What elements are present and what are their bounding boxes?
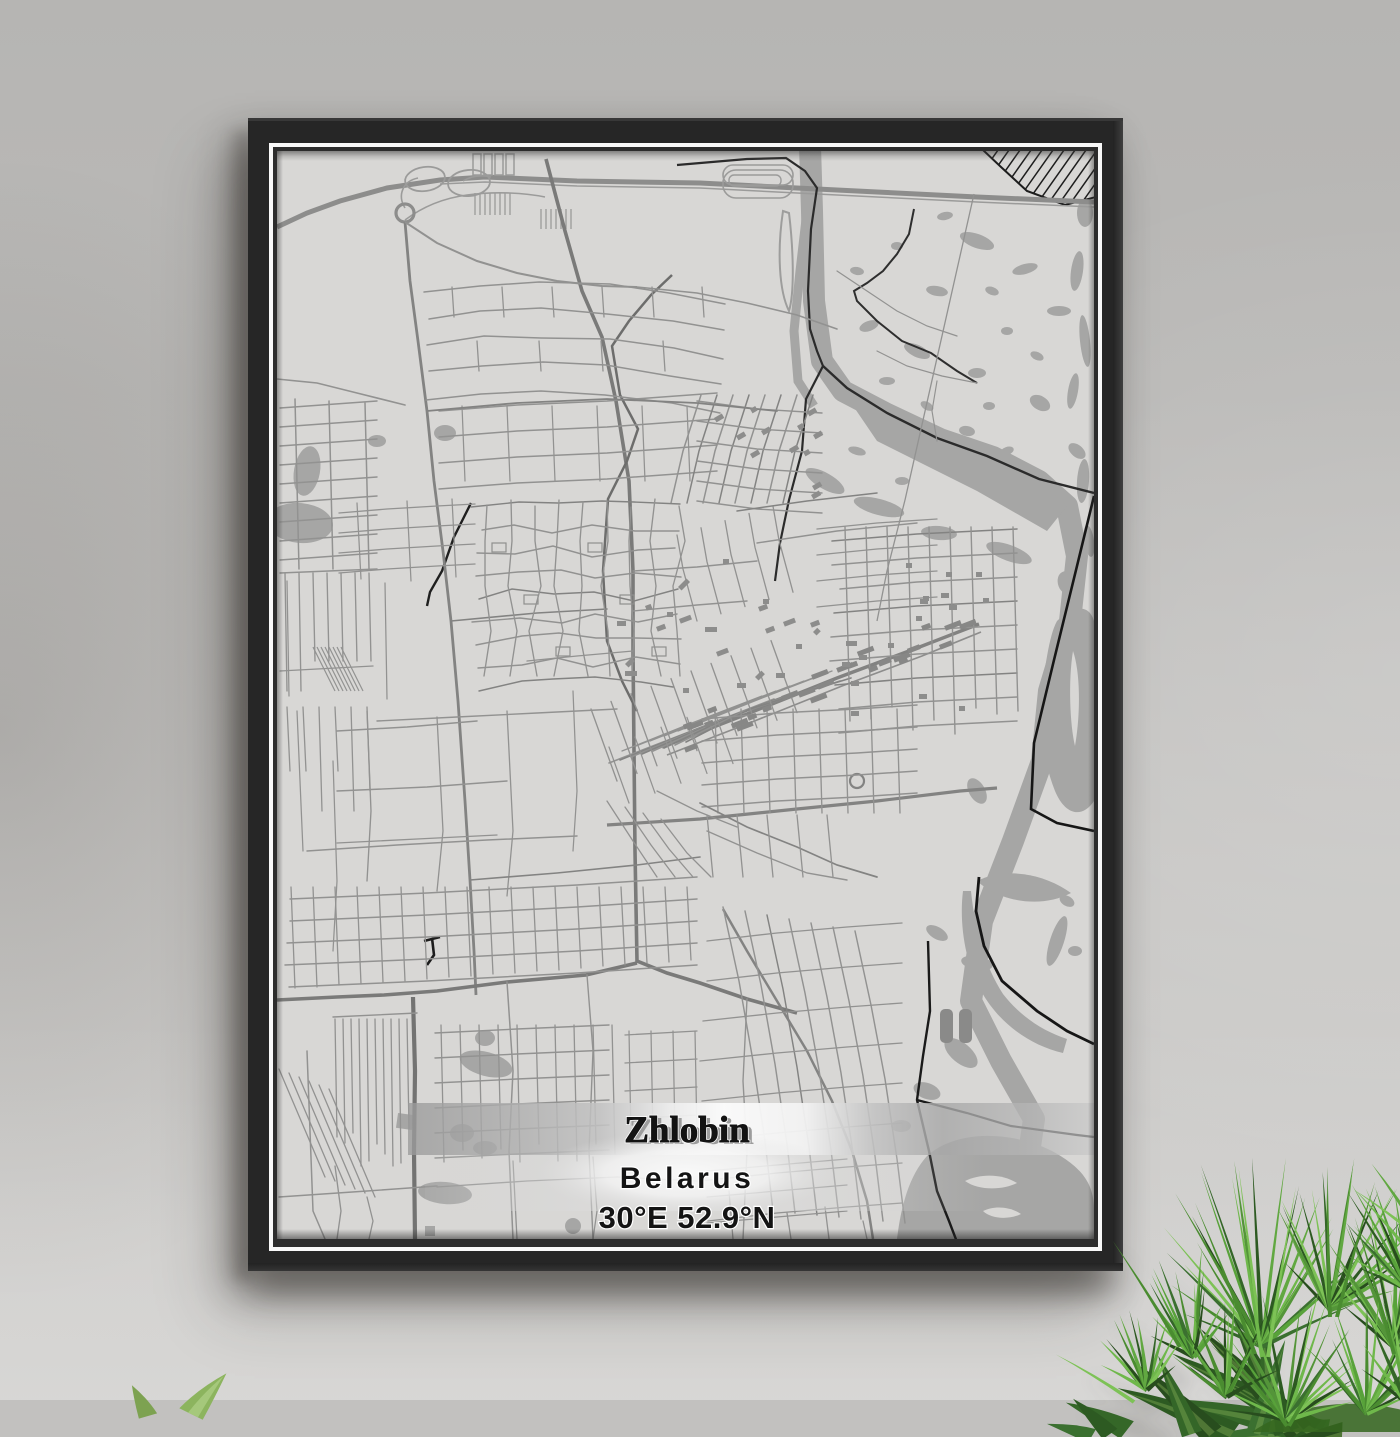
- svg-text:Belarus: Belarus: [620, 1162, 755, 1195]
- svg-text:Zhlobin: Zhlobin: [624, 1110, 750, 1151]
